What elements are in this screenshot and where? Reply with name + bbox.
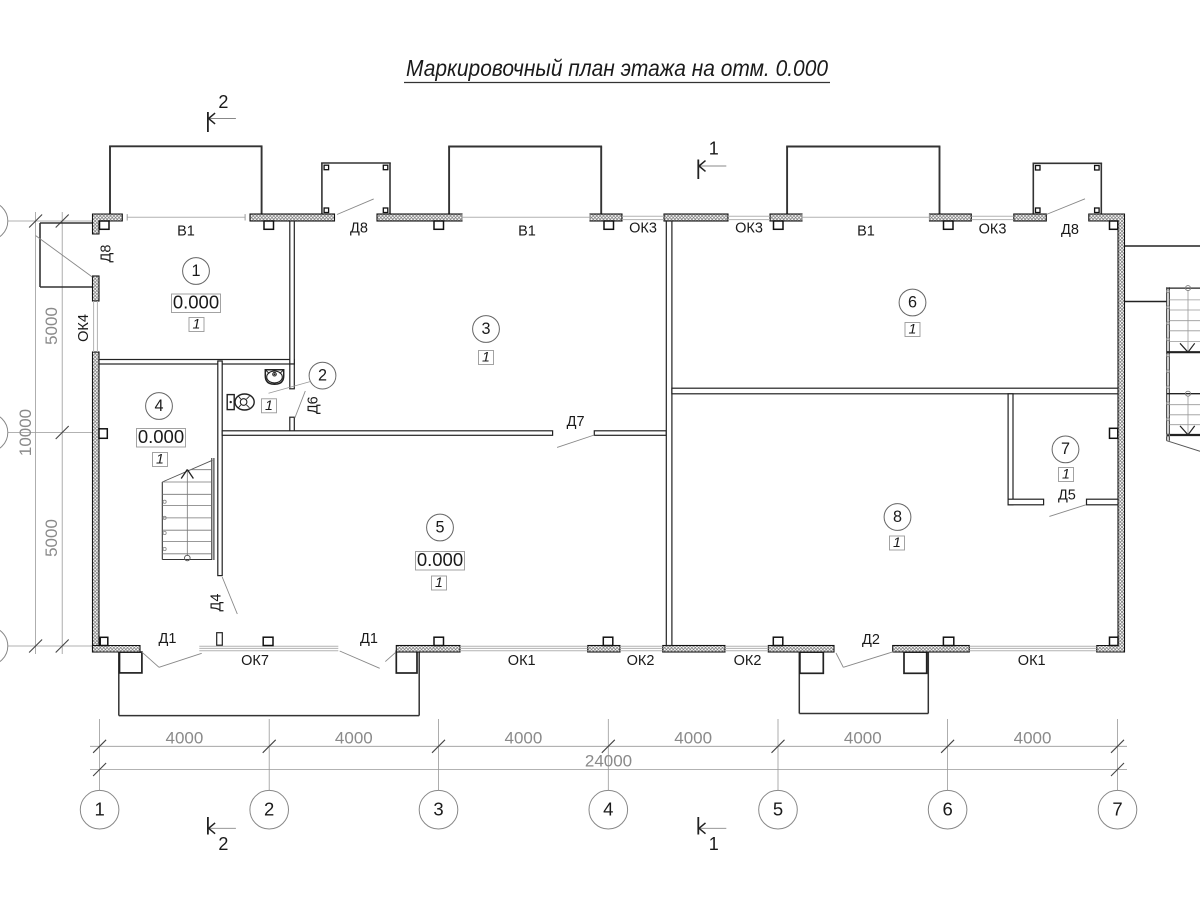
svg-text:1: 1 (909, 322, 917, 338)
svg-text:2: 2 (218, 92, 228, 112)
svg-text:6: 6 (942, 799, 952, 820)
svg-text:В1: В1 (857, 223, 875, 239)
svg-text:2: 2 (218, 834, 228, 854)
svg-text:Д1: Д1 (159, 631, 177, 647)
svg-text:Д1: Д1 (360, 631, 378, 647)
svg-text:Д4: Д4 (208, 594, 224, 612)
svg-text:В1: В1 (177, 223, 195, 239)
svg-text:4000: 4000 (335, 728, 373, 747)
svg-text:3: 3 (481, 320, 490, 338)
svg-text:8: 8 (893, 508, 902, 526)
svg-text:ОК1: ОК1 (1018, 653, 1046, 669)
svg-text:0.000: 0.000 (173, 291, 219, 312)
svg-text:Д8: Д8 (350, 221, 368, 237)
svg-text:1: 1 (191, 262, 200, 280)
svg-text:ОК3: ОК3 (735, 221, 763, 237)
svg-text:7: 7 (1112, 799, 1122, 820)
svg-text:5000: 5000 (42, 307, 61, 345)
svg-text:0.000: 0.000 (138, 426, 184, 447)
svg-text:1: 1 (156, 452, 164, 468)
svg-text:5: 5 (435, 518, 444, 536)
svg-text:4: 4 (154, 397, 163, 415)
svg-text:5: 5 (773, 799, 783, 820)
svg-text:В1: В1 (518, 223, 536, 239)
svg-text:1: 1 (193, 317, 201, 333)
svg-text:1: 1 (709, 834, 719, 854)
svg-text:1: 1 (893, 535, 901, 551)
svg-text:1: 1 (482, 350, 490, 366)
svg-text:Маркировочный план этажа на от: Маркировочный план этажа на отм. 0.000 (406, 55, 828, 81)
svg-text:ОК2: ОК2 (627, 653, 655, 669)
svg-text:6: 6 (908, 293, 917, 311)
svg-text:ОК4: ОК4 (76, 314, 92, 342)
svg-text:ОК3: ОК3 (629, 221, 657, 237)
svg-text:ОК2: ОК2 (734, 653, 762, 669)
svg-text:0.000: 0.000 (417, 549, 463, 570)
svg-text:4: 4 (603, 799, 613, 820)
svg-text:Д7: Д7 (567, 414, 585, 430)
svg-text:ОК3: ОК3 (979, 221, 1007, 237)
svg-text:1: 1 (94, 799, 104, 820)
svg-text:4000: 4000 (844, 728, 882, 747)
svg-text:4000: 4000 (165, 728, 203, 747)
svg-text:1: 1 (709, 138, 719, 158)
svg-text:ОК7: ОК7 (241, 653, 269, 669)
svg-text:7: 7 (1061, 440, 1070, 458)
svg-text:4000: 4000 (674, 728, 712, 747)
svg-text:1: 1 (265, 398, 273, 414)
svg-text:Д6: Д6 (306, 396, 322, 414)
svg-text:5000: 5000 (42, 519, 61, 557)
svg-text:1: 1 (435, 575, 443, 591)
svg-text:4000: 4000 (1014, 728, 1052, 747)
svg-text:4000: 4000 (504, 728, 542, 747)
svg-text:Д5: Д5 (1058, 488, 1076, 504)
svg-text:10000: 10000 (16, 409, 35, 456)
svg-text:24000: 24000 (585, 751, 632, 770)
svg-text:ОК1: ОК1 (508, 653, 536, 669)
svg-text:3: 3 (433, 799, 443, 820)
svg-text:2: 2 (264, 799, 274, 820)
svg-text:1: 1 (1062, 467, 1070, 483)
svg-text:Д8: Д8 (1061, 222, 1079, 238)
svg-text:Д2: Д2 (862, 632, 880, 648)
svg-text:2: 2 (318, 366, 327, 384)
svg-text:Д8: Д8 (98, 245, 114, 263)
